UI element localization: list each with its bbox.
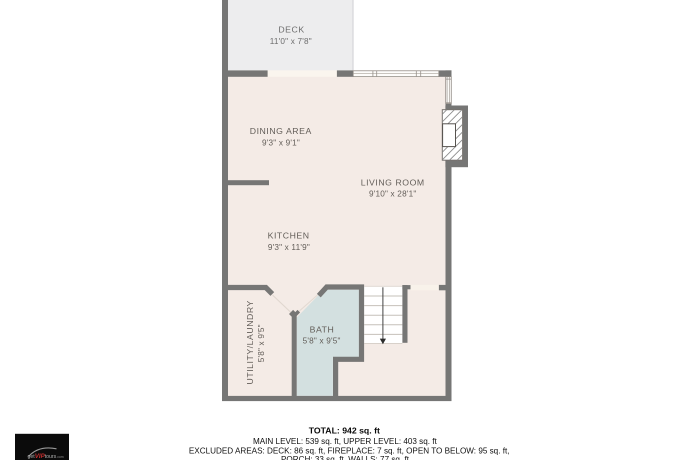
svg-text:9'10" x 28'1": 9'10" x 28'1": [369, 190, 417, 199]
svg-text:KITCHEN: KITCHEN: [268, 230, 310, 240]
svg-text:UTILITY/LAUNDRY: UTILITY/LAUNDRY: [245, 300, 255, 384]
svg-text:DINING AREA: DINING AREA: [250, 126, 312, 136]
svg-text:TOTAL: 942 sq. ft: TOTAL: 942 sq. ft: [309, 426, 380, 436]
svg-text:BATH: BATH: [310, 324, 335, 334]
svg-text:getVIPtours.com: getVIPtours.com: [28, 453, 64, 460]
svg-text:11'0" x 7'8": 11'0" x 7'8": [270, 37, 312, 46]
svg-text:9'3" x 11'9": 9'3" x 11'9": [268, 243, 310, 252]
svg-text:5'8" x 9'5": 5'8" x 9'5": [257, 324, 266, 362]
svg-text:5'8" x 9'5": 5'8" x 9'5": [303, 337, 341, 346]
svg-text:DECK: DECK: [278, 25, 304, 35]
svg-text:MAIN LEVEL: 539 sq. ft, UPPER: MAIN LEVEL: 539 sq. ft, UPPER LEVEL: 403…: [253, 437, 438, 446]
svg-text:9'3" x 9'1": 9'3" x 9'1": [262, 139, 300, 148]
svg-text:PORCH: 33 sq. ft, WALLS: 77 sq: PORCH: 33 sq. ft, WALLS: 77 sq. ft: [281, 455, 410, 460]
svg-text:LIVING ROOM: LIVING ROOM: [361, 177, 425, 187]
svg-text:EXCLUDED AREAS: DECK: 86 sq. f: EXCLUDED AREAS: DECK: 86 sq. ft, FIREPLA…: [189, 446, 510, 455]
